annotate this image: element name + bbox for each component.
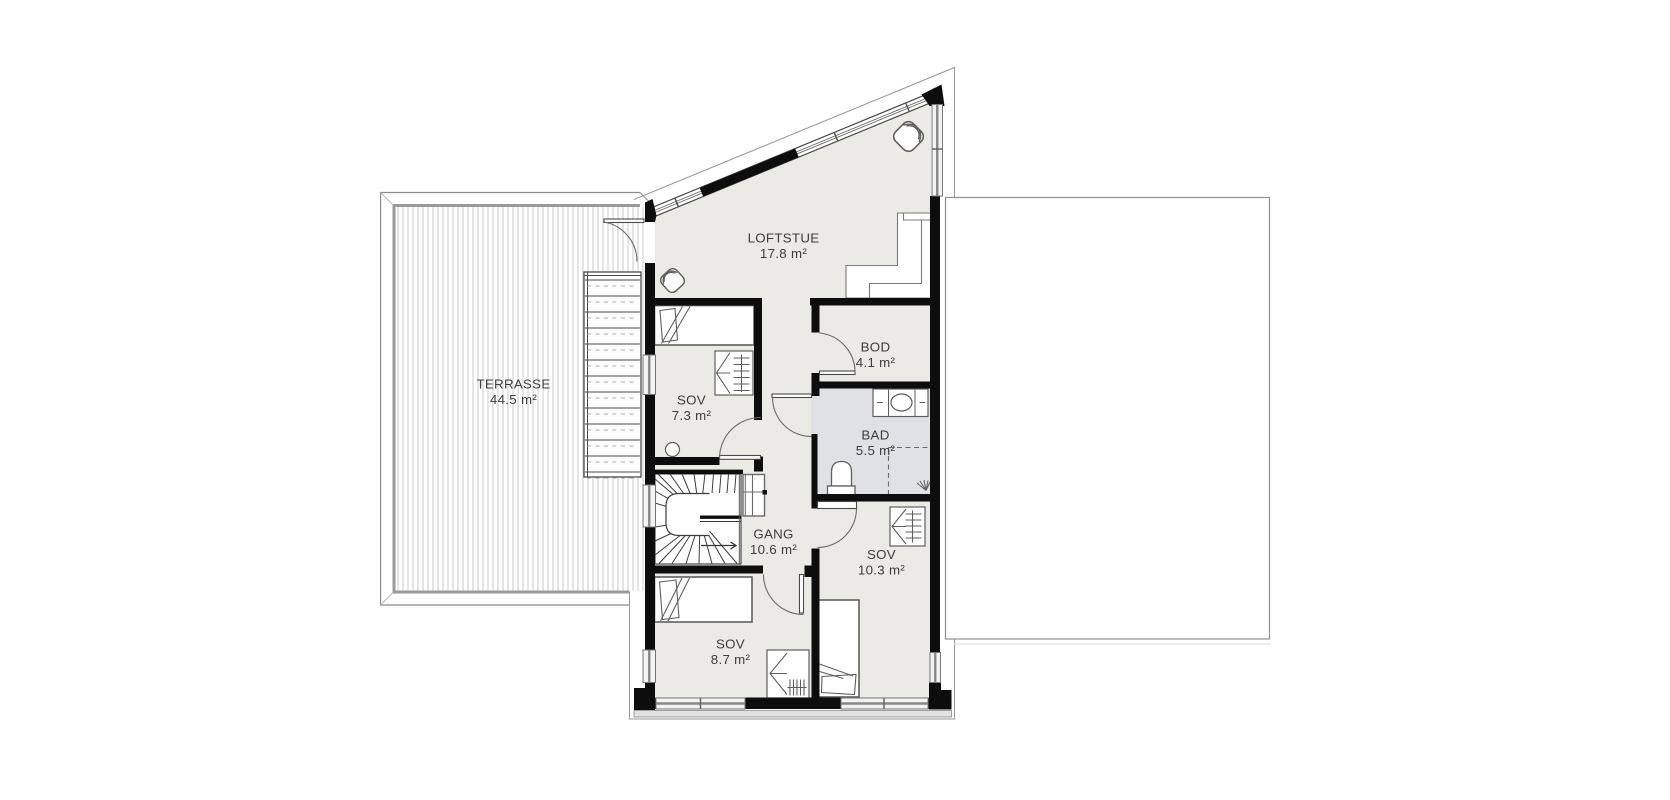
- svg-text:8.7 m²: 8.7 m²: [711, 652, 751, 667]
- svg-text:BOD: BOD: [861, 340, 891, 355]
- svg-text:10.6 m²: 10.6 m²: [750, 542, 797, 557]
- svg-text:SOV: SOV: [867, 547, 896, 562]
- svg-text:5.5 m²: 5.5 m²: [856, 443, 896, 458]
- svg-text:SOV: SOV: [716, 637, 745, 652]
- svg-text:10.3 m²: 10.3 m²: [858, 563, 905, 578]
- svg-text:GANG: GANG: [753, 527, 793, 542]
- svg-text:BAD: BAD: [861, 428, 889, 443]
- svg-text:TERRASSE: TERRASSE: [476, 377, 550, 392]
- svg-text:44.5 m²: 44.5 m²: [490, 392, 537, 407]
- svg-text:SOV: SOV: [677, 393, 706, 408]
- svg-text:7.3 m²: 7.3 m²: [672, 408, 712, 423]
- svg-text:4.1 m²: 4.1 m²: [856, 355, 896, 370]
- svg-text:17.8 m²: 17.8 m²: [760, 246, 807, 261]
- svg-text:LOFTSTUE: LOFTSTUE: [748, 231, 820, 246]
